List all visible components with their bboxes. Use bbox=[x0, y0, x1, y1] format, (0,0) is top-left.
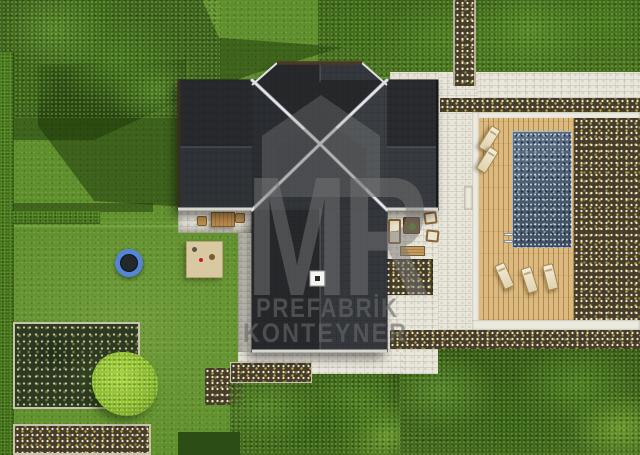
shrubs-dark-strip bbox=[178, 432, 240, 455]
house-roof bbox=[158, 48, 458, 368]
flower-bed-right bbox=[574, 118, 640, 320]
deck-border-bottom bbox=[472, 320, 640, 330]
mow-line bbox=[0, 225, 178, 227]
deck-step bbox=[464, 186, 473, 210]
pool-ladder-rail bbox=[504, 233, 513, 236]
bright-tree bbox=[92, 352, 158, 416]
aerial-render-canvas: MR PREFABRİK KONTEYNER bbox=[0, 0, 640, 455]
boundary-hedge-left bbox=[0, 52, 14, 455]
swimming-pool bbox=[512, 131, 572, 248]
pool-ladder-rail bbox=[504, 240, 513, 243]
flower-strip-top bbox=[440, 98, 640, 112]
flower-strip-bottom-left bbox=[13, 424, 151, 455]
shrubs-bottom-middle bbox=[230, 374, 400, 455]
trampoline bbox=[115, 249, 143, 277]
hedge-horizontal bbox=[13, 211, 100, 224]
